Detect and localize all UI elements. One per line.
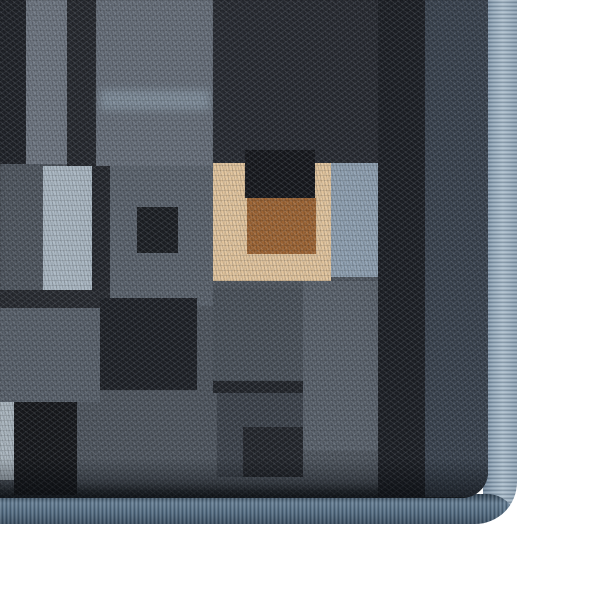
rug-pile-pattern (0, 0, 488, 498)
column-dark-second (67, 0, 96, 166)
square-light-blue-right (331, 163, 378, 277)
strip-dark-left (92, 166, 110, 290)
rug-binding-bottom-edge (0, 494, 517, 524)
square-dark-low-center (243, 427, 303, 477)
column-gray-left (26, 0, 67, 164)
block-dark-mid-left (100, 298, 197, 390)
square-brown (247, 198, 316, 254)
pattern-blocks (0, 0, 488, 498)
field-gray-left-lower (0, 308, 100, 402)
streak-light (100, 90, 210, 110)
edge-dark-under-square (213, 381, 317, 393)
block-black-bottom-left (14, 402, 77, 495)
rug (0, 0, 517, 524)
notch-black (245, 150, 315, 198)
column-navy-border (425, 0, 488, 497)
column-gray-right-lower (303, 281, 378, 451)
column-black-left (0, 0, 26, 164)
rug-fringe-right-edge (483, 0, 517, 524)
rect-light-blue-left (43, 166, 92, 290)
square-dark-inner (137, 207, 178, 253)
block-gray-streaked (96, 0, 213, 166)
square-gray-outlined (213, 288, 317, 381)
product-photo (0, 0, 600, 600)
sliver-light-bottom-left (0, 402, 14, 480)
band-dark-vertical (378, 0, 425, 497)
band-dark-horizontal-left (0, 290, 110, 308)
